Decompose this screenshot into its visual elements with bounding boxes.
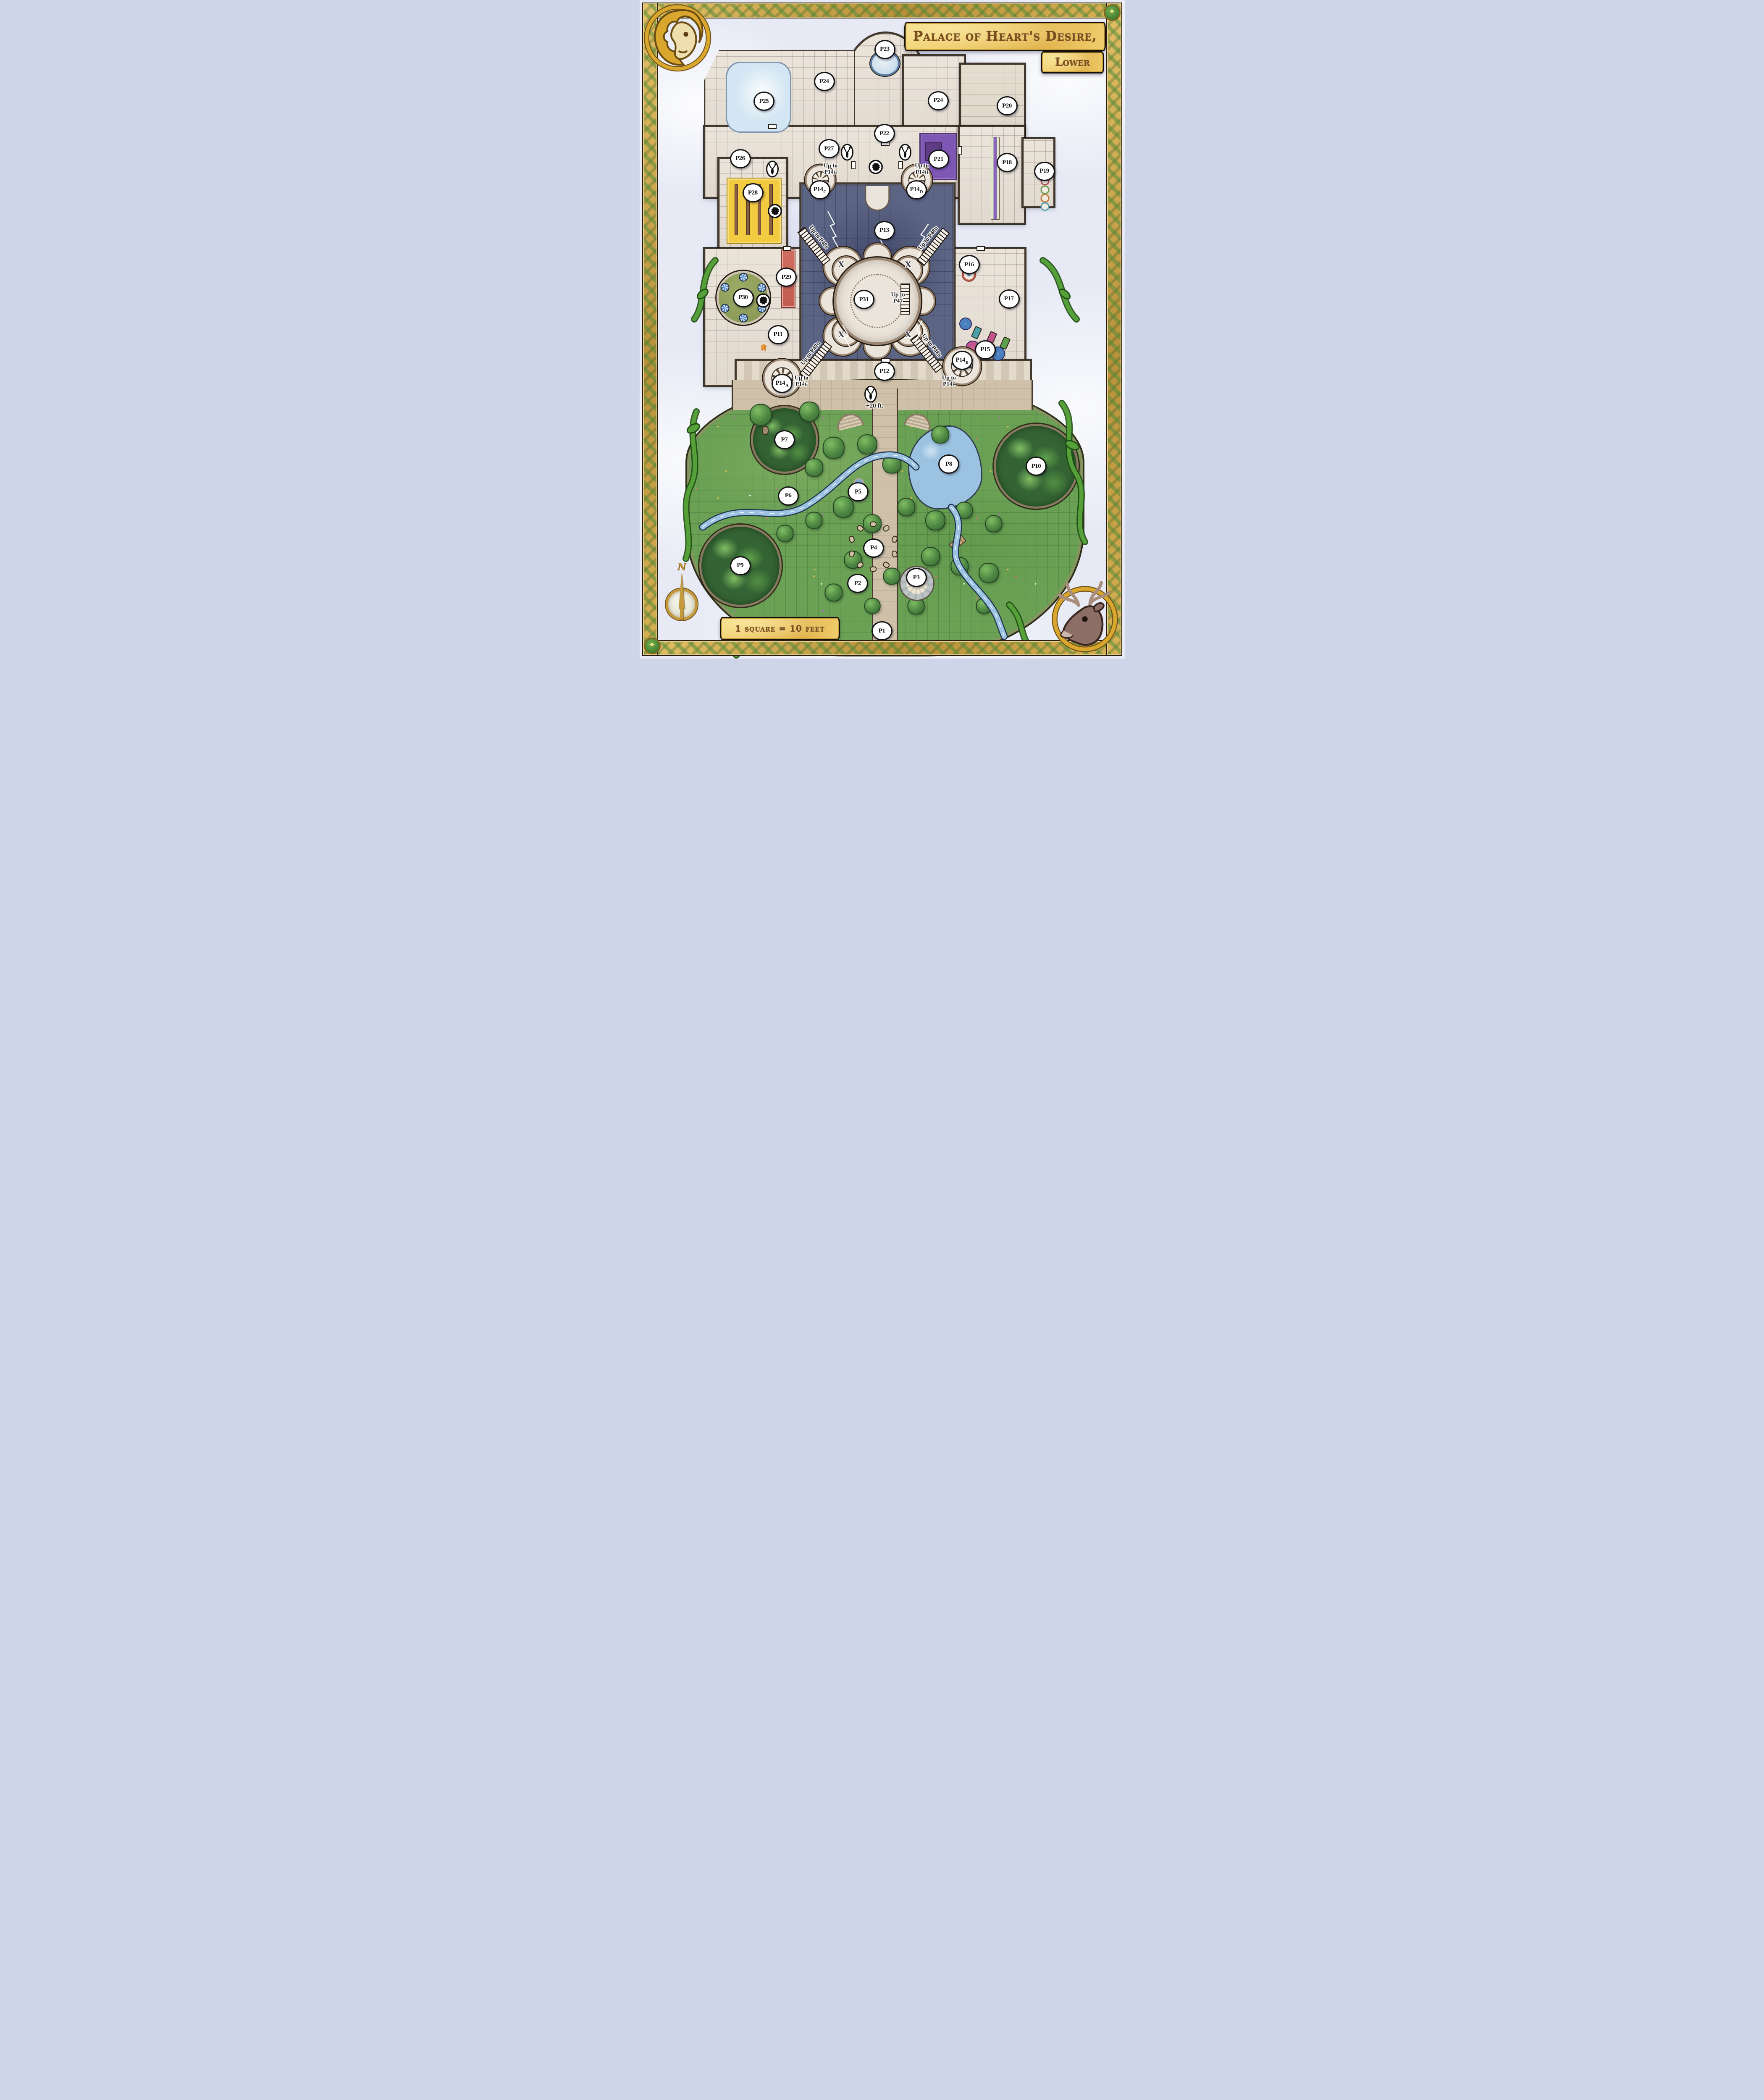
parasol-p30	[720, 304, 729, 312]
door	[958, 146, 962, 155]
runner-p18	[991, 137, 1000, 219]
room-label-P2: P2	[847, 574, 868, 593]
parasol-p30	[739, 314, 748, 323]
stag-door-marker-icon	[864, 386, 877, 404]
room-label-P14D: P14D	[906, 180, 927, 199]
map-scale: 1 square = 10 feet	[735, 624, 824, 634]
room-label-P24: P24	[928, 91, 949, 110]
x-mark: X	[838, 260, 845, 269]
lion-door-marker-icon	[768, 204, 782, 220]
border-band-left	[642, 3, 658, 656]
map-subtitle: Lower	[1055, 56, 1090, 69]
court-entry-arch	[865, 186, 890, 211]
star-ornament-icon: ✦	[1104, 4, 1121, 21]
star-ornament-icon: ✦	[644, 638, 661, 654]
scale-banner: 1 square = 10 feet	[720, 617, 840, 640]
tree	[897, 498, 915, 516]
stag-ornament-icon	[1046, 575, 1121, 655]
tree	[806, 512, 823, 529]
room-label-P7: P7	[774, 430, 795, 449]
room-label-P18: P18	[997, 153, 1018, 172]
lion-door-marker-icon	[756, 294, 770, 310]
subtitle-banner: Lower	[1041, 51, 1105, 73]
tree	[931, 425, 949, 444]
map-title: Palace of Heart's Desire,	[913, 29, 1097, 44]
room-label-P31: P31	[853, 290, 874, 309]
door	[783, 246, 791, 251]
room-label-P30: P30	[733, 288, 754, 307]
parasol-p30	[757, 283, 766, 292]
room-label-P14C: P14C	[809, 180, 830, 199]
room-label-P6: P6	[778, 486, 799, 506]
tree	[864, 598, 881, 614]
stag-door-marker-icon	[766, 160, 779, 179]
door	[768, 124, 777, 129]
room-label-P19: P19	[1034, 162, 1055, 181]
room-label-P12: P12	[874, 362, 895, 381]
lion-door-marker-icon	[869, 160, 883, 176]
room-label-P15: P15	[975, 340, 996, 360]
room-label-P20: P20	[997, 96, 1018, 115]
tree	[799, 402, 819, 422]
room-label-P5: P5	[848, 482, 869, 501]
tree	[976, 598, 992, 614]
tree	[777, 525, 794, 542]
room-label-P26: P26	[730, 149, 751, 168]
tree	[857, 434, 877, 454]
standing-stone-p4	[870, 522, 877, 527]
room-label-P27: P27	[819, 139, 840, 158]
tree	[882, 455, 901, 473]
room-label-P11: P11	[768, 325, 789, 344]
room-label-P3: P3	[906, 568, 927, 587]
stair-label-P47: Up to P47	[891, 292, 905, 304]
table-p19	[1041, 194, 1050, 202]
compass-rose: N	[661, 583, 703, 625]
compass-needle-icon	[679, 572, 685, 609]
tree	[979, 563, 999, 583]
map-canvas: Palace of Heart's Desire, Lower 1 square…	[640, 0, 1125, 659]
x-mark: X	[905, 260, 911, 269]
room-label-P4: P4	[863, 538, 884, 558]
door	[976, 246, 985, 251]
stag-door-marker-icon	[899, 144, 911, 163]
stair-label-P14E: Up to P14E	[795, 375, 808, 387]
room-label-P17: P17	[999, 289, 1020, 309]
tree	[956, 502, 973, 519]
parasol-p30	[720, 283, 729, 291]
room-label-P22: P22	[874, 124, 895, 143]
map-page: ✦ ✦	[640, 0, 1125, 659]
room-label-P14B: P14B	[952, 351, 973, 370]
room-label-P25: P25	[753, 92, 774, 111]
room-label-P28: P28	[743, 183, 764, 202]
room-label-P1: P1	[871, 621, 892, 640]
tree	[833, 496, 854, 517]
tree	[824, 584, 843, 602]
table-p28	[735, 184, 738, 235]
room-label-P29: P29	[776, 268, 797, 287]
room-label-P9: P9	[730, 556, 751, 575]
stair-label-P14F: Up to P14F	[942, 375, 956, 387]
tree	[805, 459, 823, 477]
tree	[921, 547, 940, 566]
tree	[822, 437, 845, 459]
room-label-P21: P21	[928, 150, 949, 169]
stair-label-P14G: Up to P14G	[824, 163, 837, 175]
statue-p7	[762, 426, 769, 435]
tree	[925, 510, 945, 530]
stag-door-marker-icon	[841, 144, 853, 163]
rug-p15	[959, 318, 972, 330]
room-label-P23: P23	[874, 40, 895, 59]
tree	[750, 404, 772, 426]
stair-label-P14H: Up to P14H	[915, 163, 929, 175]
tree	[950, 557, 969, 575]
compass-north-label: N	[677, 562, 686, 572]
lion-ornament-icon	[643, 3, 714, 75]
room-label-P13: P13	[874, 221, 895, 240]
border-band-right	[1106, 3, 1122, 656]
tree	[985, 515, 1002, 532]
standing-stone-p4	[870, 566, 877, 572]
parasol-p30	[739, 273, 748, 282]
table-p19	[1041, 185, 1050, 194]
room-label-P10: P10	[1026, 457, 1047, 476]
x-mark: X	[905, 330, 911, 339]
room-label-P24: P24	[814, 72, 835, 91]
x-mark: X	[838, 330, 845, 339]
room-label-P14A: P14A	[772, 374, 793, 393]
room-label-P8: P8	[938, 454, 959, 474]
title-banner: Palace of Heart's Desire,	[904, 22, 1106, 51]
tree	[883, 568, 900, 585]
table-p19	[1041, 202, 1050, 211]
room-label-P16: P16	[959, 255, 980, 274]
